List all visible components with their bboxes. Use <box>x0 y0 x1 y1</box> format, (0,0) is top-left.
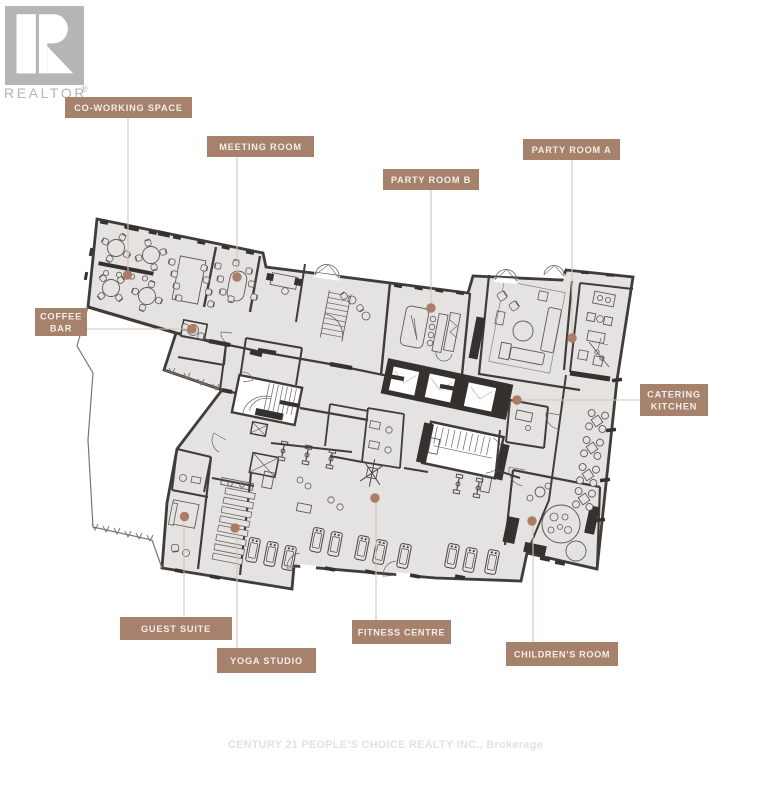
svg-text:CENTURY 21 PEOPLE’S CHOICE REA: CENTURY 21 PEOPLE’S CHOICE REALTY INC., … <box>228 739 543 751</box>
svg-text:CATERING: CATERING <box>647 390 701 400</box>
svg-text:FITNESS CENTRE: FITNESS CENTRE <box>358 628 446 638</box>
svg-text:CO-WORKING SPACE: CO-WORKING SPACE <box>74 103 183 113</box>
svg-text:COFFEE: COFFEE <box>40 312 82 322</box>
svg-text:GUEST SUITE: GUEST SUITE <box>141 624 211 634</box>
svg-text:BAR: BAR <box>50 324 72 334</box>
svg-text:KITCHEN: KITCHEN <box>651 402 697 412</box>
svg-text:®: ® <box>81 84 88 94</box>
svg-text:CHILDREN’S ROOM: CHILDREN’S ROOM <box>514 650 610 660</box>
svg-text:PARTY ROOM B: PARTY ROOM B <box>391 175 471 185</box>
svg-text:PARTY ROOM A: PARTY ROOM A <box>532 145 612 155</box>
svg-text:YOGA STUDIO: YOGA STUDIO <box>230 656 303 666</box>
svg-text:MEETING ROOM: MEETING ROOM <box>219 142 302 152</box>
